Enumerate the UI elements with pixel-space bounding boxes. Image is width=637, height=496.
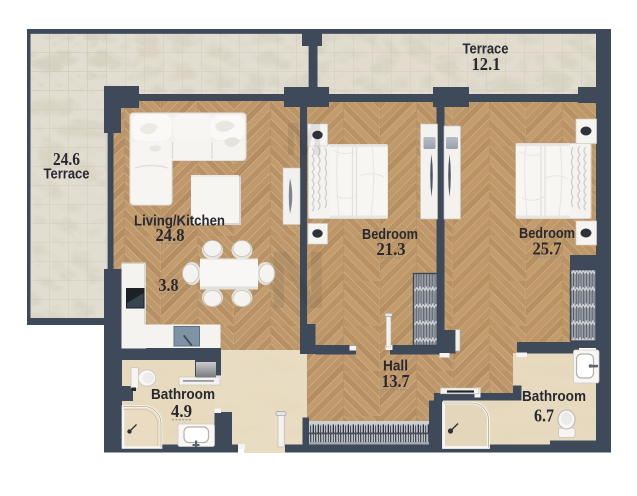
svg-text:13.7: 13.7 [382, 371, 410, 391]
svg-text:4.9: 4.9 [171, 401, 192, 421]
svg-text:6.7: 6.7 [534, 406, 554, 426]
svg-text:3.8: 3.8 [159, 275, 179, 295]
svg-text:25.7: 25.7 [533, 239, 562, 259]
svg-text:M: M [285, 113, 323, 165]
svg-text:24.8: 24.8 [156, 225, 185, 245]
svg-text:N: N [268, 235, 327, 326]
svg-text:Bathroom: Bathroom [522, 388, 586, 405]
svg-text:21.3: 21.3 [377, 239, 406, 259]
svg-text:Terrace: Terrace [44, 166, 90, 183]
svg-text:12.1: 12.1 [472, 54, 501, 74]
